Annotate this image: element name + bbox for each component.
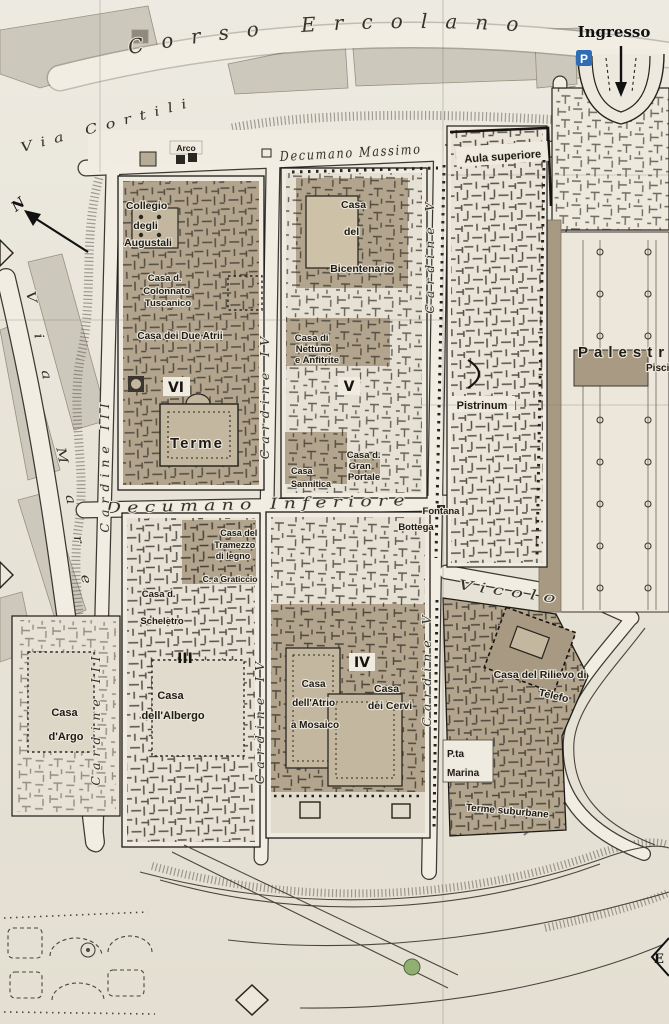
label-telefo: Casa del Rilievo di (494, 669, 587, 681)
label-graticcio: C. a Graticcio (203, 574, 258, 584)
parking-label: P (580, 52, 588, 66)
street-cardine-iv-upper: Cardine IV (257, 331, 272, 459)
label-pistrinum: Pistrinum (457, 400, 508, 412)
east-label: E (654, 952, 664, 967)
insula-iv-numeral: IV (354, 655, 370, 671)
insula-vi-numeral: VI (168, 380, 184, 396)
insula-iii-block (122, 513, 260, 847)
street-cardine-v-lower: Cardine V (419, 609, 434, 726)
label-bottega: Bottega (398, 522, 434, 533)
label-palestra: Palestra (578, 344, 669, 361)
street-cardine-iii-upper: Cardine III (97, 397, 112, 532)
cardine-v-east-block (447, 126, 551, 567)
street-cardine-iv-lower: Cardine IV (252, 656, 267, 784)
ingresso-label: Ingresso (578, 23, 651, 41)
palestra-area (556, 232, 669, 612)
label-piscina: Piscina (646, 363, 669, 374)
label-fontana: Fontana (423, 506, 461, 517)
insula-v-numeral: V (344, 379, 355, 395)
label-arco: Arco (176, 143, 195, 153)
street-cardine-v-upper: Cardine V (422, 196, 437, 313)
street-cardine-iii-lower: Cardine III (88, 650, 103, 785)
insula-iii-numeral: III (177, 651, 193, 667)
label-terme: Terme (170, 435, 224, 452)
insula-iv-block (266, 512, 430, 838)
label-due-atrii: Casa dei Due Atrii (137, 331, 222, 342)
herculaneum-map: P N E Corso Ercolano Via Cortili Via Mar… (0, 0, 669, 1024)
round-lawn (404, 959, 420, 975)
